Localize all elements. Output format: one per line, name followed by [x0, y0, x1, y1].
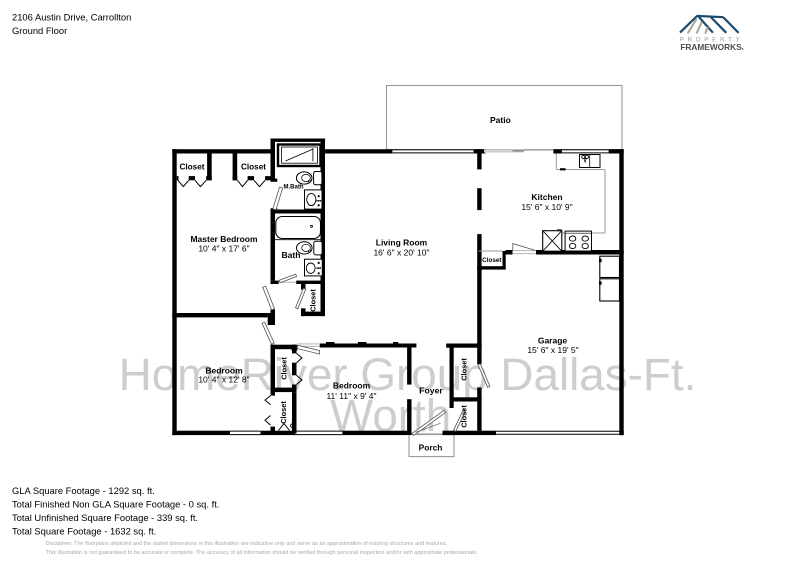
svg-text:15' 6" x 19' 5": 15' 6" x 19' 5": [527, 345, 578, 355]
svg-text:Foyer: Foyer: [419, 386, 443, 396]
svg-text:Closet: Closet: [459, 358, 468, 381]
svg-text:Bath: Bath: [281, 250, 300, 260]
svg-text:Total Unfinished Square Footag: Total Unfinished Square Footage - 339 sq…: [12, 512, 198, 523]
svg-text:Garage: Garage: [538, 335, 568, 345]
svg-text:Closet: Closet: [309, 289, 318, 312]
svg-text:Master Bedroom: Master Bedroom: [190, 234, 258, 244]
svg-text:11' 11" x 9' 4": 11' 11" x 9' 4": [326, 391, 376, 401]
svg-text:This illustration is not guara: This illustration is not guaranteed to b…: [46, 550, 479, 556]
svg-text:2106 Austin Drive, Carrollton: 2106 Austin Drive, Carrollton: [12, 11, 131, 22]
svg-text:M.Bath: M.Bath: [284, 185, 304, 191]
svg-text:Ground Floor: Ground Floor: [12, 25, 67, 36]
svg-text:15' 6" x 10' 9": 15' 6" x 10' 9": [521, 202, 572, 212]
svg-text:Closet: Closet: [241, 162, 266, 171]
svg-text:16' 6" x 20' 10": 16' 6" x 20' 10": [373, 248, 429, 258]
svg-text:Disclaimer: The floorplans dep: Disclaimer: The floorplans depicted and …: [46, 541, 448, 547]
svg-text:Closet: Closet: [459, 405, 468, 428]
svg-text:10' 4" x 12' 8": 10' 4" x 12' 8": [198, 375, 249, 385]
svg-text:Closet: Closet: [279, 401, 288, 424]
svg-text:GLA Square Footage - 1292 sq.: GLA Square Footage - 1292 sq. ft.: [12, 485, 155, 496]
svg-text:Patio: Patio: [490, 115, 511, 125]
svg-text:Total Finished Non GLA Square: Total Finished Non GLA Square Footage - …: [12, 499, 219, 510]
svg-text:10' 4" x 17' 6": 10' 4" x 17' 6": [198, 244, 249, 254]
svg-text:Living Room: Living Room: [376, 237, 428, 247]
svg-text:Total Square Footage - 1632 sq: Total Square Footage - 1632 sq. ft.: [12, 526, 156, 537]
svg-text:Kitchen: Kitchen: [531, 192, 562, 202]
svg-text:Closet: Closet: [179, 162, 204, 171]
svg-text:Closet: Closet: [482, 257, 502, 264]
svg-text:FRAMEWORKS: FRAMEWORKS: [680, 42, 742, 52]
svg-text:Closet: Closet: [280, 357, 289, 380]
svg-text:Porch: Porch: [419, 442, 443, 452]
svg-text:Bedroom: Bedroom: [333, 381, 371, 391]
